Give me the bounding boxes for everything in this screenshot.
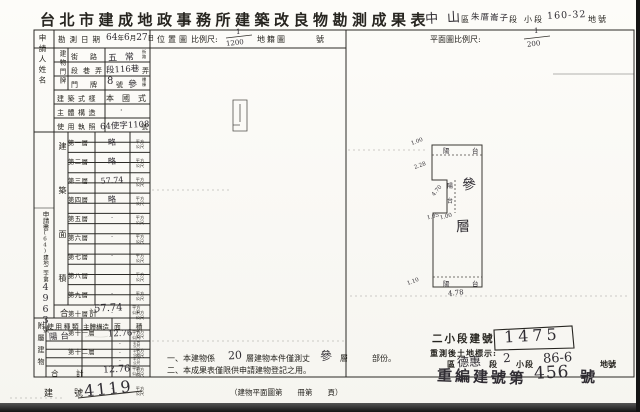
floor-label: 第九層: [68, 290, 94, 299]
floor-area-value: ·: [94, 252, 130, 260]
area-total-value: 57.74: [94, 302, 123, 314]
renumber-prefix: 重編建號第: [437, 364, 528, 388]
resurvey-subsection-hw: 2: [503, 351, 511, 365]
subsection-label: 小段: [524, 14, 544, 25]
floor-row: 第五層 · 平方公尺: [68, 209, 150, 228]
date-day-label: 日: [148, 34, 155, 42]
floor-row: 第六層 · 平方公尺: [68, 228, 150, 247]
scale-label: 比例尺:: [191, 34, 218, 45]
floor-area-value: ·: [94, 214, 130, 222]
plan-scale-label: 平面圖比例尺:: [430, 34, 481, 45]
cadastre-number-label: 號: [316, 34, 324, 45]
form-title: 台北市建成地政事務所建築改良物勘測成果表: [40, 9, 430, 30]
license-suffix: 號: [141, 122, 148, 132]
floor-row: 第二層 略 平方公尺: [68, 152, 150, 171]
scanned-survey-form: 台北市建成地政事務所建築改良物勘測成果表 中山 區 朱厝崙子 段 小段 160-…: [0, 0, 640, 412]
floor-area-unit: 平方公尺: [130, 247, 150, 266]
floor-label: 第三層: [68, 176, 94, 185]
style-value: 本 國 式: [106, 93, 146, 104]
survey-date-value: 64年6月27日: [106, 32, 154, 43]
scan-right-edge: [636, 0, 640, 412]
application-doc-label: 申請書: [41, 211, 49, 231]
attached-row-use: 陽台: [49, 329, 73, 342]
floor-area-unit: 平方公尺: [130, 209, 150, 228]
note-1-prefix: 一、本建物係: [167, 353, 215, 364]
plan-balcony-mid-char-1: 陽: [447, 181, 453, 190]
floor-area-value: 略: [94, 192, 131, 205]
floor-area-unit: 平方公尺: [130, 171, 150, 190]
renumber-value-hw: 456: [534, 362, 570, 384]
floor-area-unit: 平方公尺: [130, 190, 150, 209]
location-map-label: 位置圖: [157, 34, 190, 45]
subsection-build-number-label: 二小段建號: [432, 331, 495, 346]
resurvey-parcel-label: 地號: [600, 359, 616, 370]
date-year-hw: 64: [106, 33, 117, 43]
area-total-unit: 平方公尺: [132, 306, 140, 315]
cadastre-map-label: 地籍圖: [257, 34, 287, 45]
floor-row: 第七層 · 平方公尺: [68, 247, 150, 266]
door-label: 門牌: [71, 80, 109, 90]
style-label: 建築式樣: [57, 94, 99, 104]
floor-label: 第六層: [68, 233, 94, 242]
note-1-floor-hw: 參: [320, 347, 333, 365]
plan-balcony-mid-char-2: 台: [447, 196, 453, 205]
floor-row: 第九層 · 平方公尺: [68, 285, 150, 304]
floor-label: 第五層: [68, 214, 94, 223]
attached-total-label: 合 計: [51, 368, 89, 379]
application-doc-prefix: (64)建地二字第: [42, 231, 48, 283]
plan-page-reference: （建物平面圖第 冊第 頁）: [230, 387, 343, 398]
parcel-label: 地號: [588, 14, 608, 25]
application-doc-number-hw: 4963: [40, 282, 51, 326]
floor-area-unit: 平方公尺: [130, 228, 150, 247]
note-2: 二、本成果表僅限供申請建物登記之用。: [167, 365, 311, 376]
note-1-middle: 層建物本件僅測丈: [246, 353, 310, 364]
floor-area-value: 略: [94, 154, 131, 167]
floor-label: 第四層: [68, 195, 94, 204]
floor-row: 第八層 · 平方公尺: [68, 266, 150, 285]
door-floor-hw: 參: [128, 77, 138, 90]
survey-date-label: 勘測日期: [58, 34, 104, 45]
door-suffix-options: 樓棟: [142, 78, 146, 87]
plan-room-char-2: 層: [455, 216, 470, 237]
street-opt-bottom: 路: [142, 55, 146, 60]
attached-structures-column-label: 附屬建物: [36, 322, 46, 374]
floor-area-unit: 平方公尺: [130, 285, 150, 304]
door-number-hw: 8: [107, 76, 113, 87]
attached-row-unit: 平方公尺: [132, 331, 140, 340]
floor-label: 第十二層: [68, 347, 94, 356]
floor-area-value: ·: [94, 290, 130, 298]
build-number-label: 建 號: [44, 386, 89, 399]
plan-balcony-top-label: 陽 台: [443, 145, 487, 155]
district-label: 區: [461, 14, 469, 25]
lane-value-hw: 段116巷: [106, 62, 140, 76]
plan-scale-denominator: 200: [527, 39, 541, 48]
attached-blank-dot: ·: [119, 341, 121, 348]
building-area-column-label: 建築面積: [57, 142, 68, 302]
door-opt-bottom: 棟: [142, 83, 146, 88]
section-label: 段: [509, 14, 517, 25]
lane-label: 段巷弄: [71, 66, 107, 76]
parcel-number-handwritten: 160-32: [547, 9, 587, 22]
floor-row: 第四層 略 平方公尺: [68, 190, 150, 209]
floor-rows: 第一層 略 平方公尺 第二層 略 平方公尺 第三層 57.74 平方公尺 第四層…: [68, 133, 150, 305]
application-number: 申請書(64)建地二字第4963號: [37, 211, 53, 317]
address-group-label: 建物門牌: [57, 50, 67, 90]
scan-bottom-edge: [0, 403, 640, 412]
floor-area-unit: 平方公尺: [130, 266, 150, 285]
plan-room-char-1: 參: [461, 173, 477, 194]
subsection-build-number-hw: 1475: [504, 325, 562, 347]
floor-area-value: ·: [94, 271, 130, 279]
floor-label: 第一層: [68, 138, 94, 147]
note-1-floors-hw: 20: [228, 349, 243, 363]
dim-label: 4.78: [448, 288, 464, 298]
attached-row-area: 12.76: [108, 328, 133, 339]
floor-area-unit: 平方公尺: [130, 133, 150, 152]
floor-area-value: 略: [94, 135, 131, 148]
plan-scale-numerator: 1: [534, 27, 538, 35]
floor-area-unit: 平方公尺: [130, 152, 150, 171]
attached-total-value: 12.76: [103, 363, 131, 375]
structure-label: 主體構造: [57, 108, 99, 118]
floor-label: 第七層: [68, 252, 94, 261]
scale-numerator: 1: [236, 28, 240, 36]
floor-area-value: ·: [94, 233, 130, 241]
floor-row: 第一層 略 平方公尺: [68, 133, 150, 152]
lane-suffix: 弄: [142, 66, 149, 76]
applicant-name-label: 申請人姓名: [37, 34, 48, 154]
floor-label: 第二層: [68, 157, 94, 166]
floor-area-value: ·: [94, 347, 130, 355]
renumber-suffix: 號: [580, 366, 596, 388]
street-label: 街路: [71, 52, 109, 62]
plan-balcony-bottom-label: 陽 台: [443, 278, 487, 288]
attached-blank-dot: ·: [119, 350, 121, 357]
date-day-hw: 27: [136, 33, 147, 43]
floor-label: 第八層: [68, 271, 94, 280]
license-label: 使用執照: [57, 122, 99, 132]
location-sketch: [233, 100, 247, 131]
attached-structure-header: 主體構造: [83, 321, 109, 331]
note-1-floor-label: 層: [340, 353, 348, 364]
street-suffix-options: 街路: [142, 50, 146, 59]
attached-total-unit: 平方公尺: [132, 367, 140, 376]
door-number-label: 號: [116, 80, 123, 90]
structure-value: ·: [120, 106, 123, 115]
section-handwritten: 朱厝崙子: [471, 10, 509, 23]
floor-area-value: 57.74: [94, 174, 131, 185]
floor-row: 第三層 57.74 平方公尺: [68, 171, 150, 190]
note-1-end: 部份。: [372, 353, 396, 364]
